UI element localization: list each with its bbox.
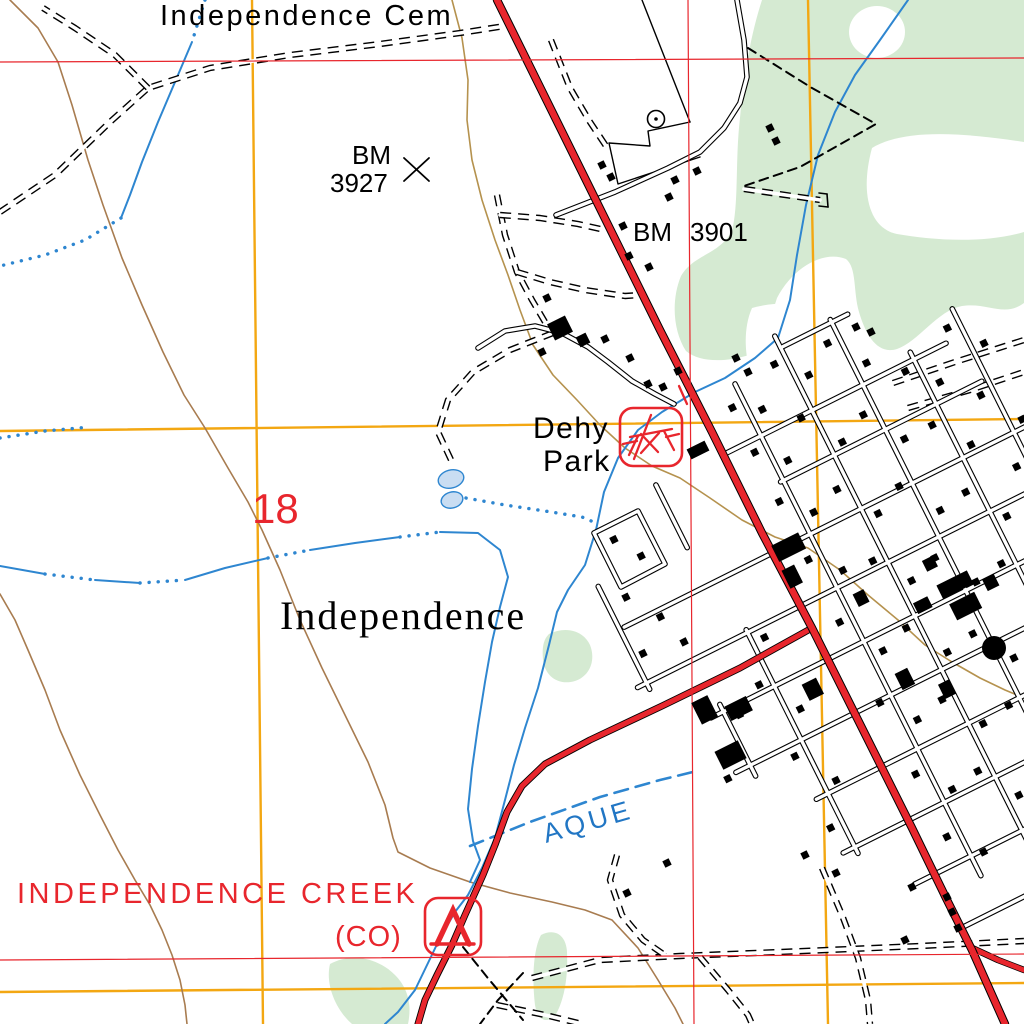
label-bm3927-elev: 3927 — [330, 168, 388, 198]
label-independence-creek-co: (CO) — [335, 921, 402, 953]
label-dehy-park-2: Park — [543, 445, 611, 478]
label-bm3927-bm: BM — [352, 140, 391, 170]
label-bm3901-bm: BM — [633, 217, 672, 247]
topo-map-screenshot: Independence Cem BM 3927 BM 3901 Dehy Pa… — [0, 0, 1024, 1024]
label-independence-creek: INDEPENDENCE CREEK — [17, 878, 418, 910]
topo-map-canvas: Independence Cem BM 3927 BM 3901 Dehy Pa… — [0, 0, 1024, 1024]
label-aqueduct: AQUE — [539, 794, 636, 848]
vegetation-layer — [329, 0, 1024, 1024]
label-bm3901-elev: 3901 — [690, 217, 748, 247]
label-town-independence: Independence — [280, 593, 526, 638]
label-layer: Independence Cem BM 3927 BM 3901 Dehy Pa… — [17, 0, 748, 953]
label-section-18: 18 — [252, 485, 299, 532]
label-dehy-park-1: Dehy — [533, 412, 609, 445]
label-cemetery: Independence Cem — [160, 0, 453, 32]
